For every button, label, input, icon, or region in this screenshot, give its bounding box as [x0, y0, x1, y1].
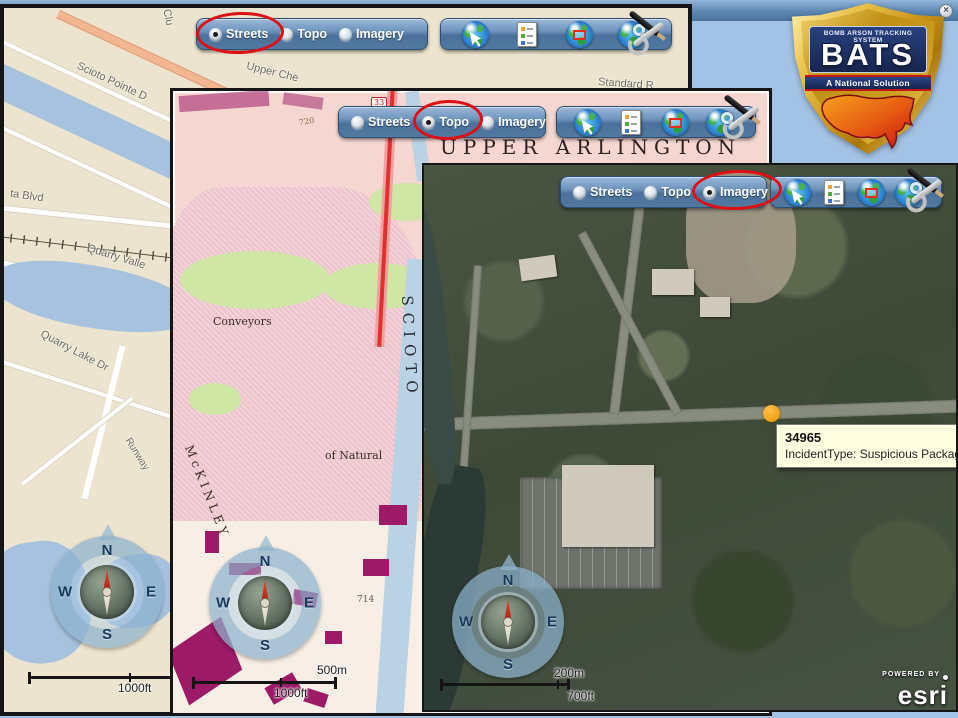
extent-globe-icon[interactable] — [566, 21, 593, 48]
logo-acronym: BATS — [810, 37, 926, 73]
radio-label: Imagery — [720, 185, 768, 199]
identify-globe-icon[interactable] — [784, 179, 811, 206]
usa-map-icon — [818, 91, 918, 151]
settings-tools-icon[interactable] — [626, 8, 676, 54]
building-shape — [363, 559, 389, 576]
basemap-toolbar: Streets Topo Imagery — [560, 176, 767, 208]
street-label: Clu — [160, 8, 175, 27]
logo-panel: Bomb Arson Tracking System BATS — [809, 26, 927, 73]
radio-circle-icon[interactable] — [573, 186, 586, 199]
radio-label: Streets — [590, 185, 632, 199]
basemap-radio-topo[interactable]: Topo — [274, 27, 333, 41]
building-shape — [519, 255, 558, 282]
compass-needle — [481, 595, 535, 649]
radio-label: Imagery — [356, 27, 404, 41]
radio-circle-icon[interactable] — [339, 28, 352, 41]
settings-tools-icon[interactable] — [721, 92, 771, 138]
incident-id: 34965 — [785, 430, 958, 445]
radio-circle-icon[interactable] — [422, 116, 435, 129]
incident-popup: 34965 IncidentType: Suspicious Package/ — [776, 424, 958, 468]
compass-south-label: S — [102, 626, 112, 643]
compass-needle — [238, 576, 292, 630]
extent-rect-icon — [669, 118, 682, 128]
compass-needle — [80, 565, 134, 619]
basemap-radio-streets[interactable]: Streets — [203, 27, 274, 41]
incident-detail: IncidentType: Suspicious Package/ — [785, 447, 958, 461]
compass-rose[interactable]: N E S W — [209, 547, 321, 659]
building-shape — [325, 631, 342, 644]
powered-by-label: POWERED BY — [882, 671, 940, 678]
building-shape — [379, 505, 407, 525]
settings-tools-icon[interactable] — [904, 165, 954, 211]
compass-east-label: E — [304, 595, 314, 612]
road-shape — [0, 204, 195, 232]
extent-globe-icon[interactable] — [858, 179, 885, 206]
street-label: Upper Che — [245, 60, 300, 85]
globe-icon — [784, 179, 811, 206]
scale-metric-label: 200m — [554, 666, 584, 680]
basemap-radio-imagery[interactable]: Imagery — [475, 115, 552, 129]
compass-north-label: N — [102, 542, 113, 559]
scale-imperial-label: 1000ft — [118, 681, 151, 695]
imagery-map-window[interactable]: Streets Topo Imagery 34965 — [422, 163, 958, 712]
street-label: Quarry Lake Dr — [38, 328, 110, 374]
place-label: Conveyors — [213, 315, 272, 328]
radio-label: Topo — [661, 185, 691, 199]
scale-bar: 500m 1000ft — [192, 673, 337, 707]
scale-bar-line — [192, 681, 337, 684]
compass-north-label: N — [260, 553, 271, 570]
radio-circle-icon[interactable] — [209, 28, 222, 41]
bats-logo: Bomb Arson Tracking System BATS A Nation… — [792, 3, 944, 154]
compass-rose[interactable]: N E S W — [452, 566, 564, 678]
compass-rose[interactable]: N E S W — [51, 536, 163, 648]
radio-label: Topo — [297, 27, 327, 41]
radio-label: Streets — [368, 115, 410, 129]
compass-west-label: W — [216, 595, 230, 612]
legend-page-icon — [517, 22, 537, 47]
scale-metric-label: 500m — [317, 663, 347, 677]
basemap-toolbar: Streets Topo Imagery — [338, 106, 546, 138]
compass-west-label: W — [459, 614, 473, 631]
building-shape — [652, 269, 694, 295]
bats-mapping-application: Clu Scioto Pointe D Upper Che Standard R… — [0, 0, 958, 718]
vegetation-shape — [180, 251, 330, 309]
vegetation-shape — [189, 383, 241, 415]
street-label: ta Blvd — [9, 188, 44, 205]
scale-bar-line — [440, 683, 570, 686]
contour-label: 720 — [298, 116, 315, 128]
basemap-radio-streets[interactable]: Streets — [567, 185, 638, 199]
basemap-toolbar: Streets Topo Imagery — [196, 18, 428, 50]
compass-south-label: S — [503, 656, 513, 673]
legend-list-icon[interactable] — [618, 109, 645, 136]
incident-marker[interactable] — [763, 405, 780, 422]
road-shape — [20, 396, 134, 487]
radio-label: Topo — [439, 115, 469, 129]
radio-circle-icon[interactable] — [703, 186, 716, 199]
radio-label: Imagery — [498, 115, 546, 129]
radio-circle-icon[interactable] — [351, 116, 364, 129]
radio-circle-icon[interactable] — [481, 116, 494, 129]
building-shape — [562, 465, 654, 547]
radio-circle-icon[interactable] — [280, 28, 293, 41]
contour-label: 714 — [357, 595, 374, 605]
logo-banner: A National Solution — [805, 75, 931, 91]
extent-rect-icon — [865, 188, 878, 198]
place-label: of Natural — [325, 449, 382, 462]
esri-logo: esri — [882, 685, 948, 705]
compass-north-label: N — [503, 572, 514, 589]
identify-globe-icon[interactable] — [574, 109, 601, 136]
basemap-radio-imagery[interactable]: Imagery — [697, 185, 774, 199]
globe-icon — [574, 109, 601, 136]
scale-imperial-label: 700ft — [567, 689, 594, 703]
esri-attribution: POWERED BY esri — [882, 667, 948, 705]
basemap-radio-imagery[interactable]: Imagery — [333, 27, 410, 41]
scale-imperial-label: 1000ft — [274, 686, 307, 700]
building-shape — [700, 297, 730, 317]
legend-page-icon — [824, 180, 844, 205]
street-label: Runway — [123, 436, 151, 472]
globe-icon — [462, 21, 489, 48]
legend-list-icon[interactable] — [821, 179, 848, 206]
building-shape — [282, 92, 323, 109]
extent-globe-icon[interactable] — [662, 109, 689, 136]
radio-label: Streets — [226, 27, 268, 41]
city-label: UPPER ARLINGTON — [440, 135, 741, 159]
compass-east-label: E — [146, 584, 156, 601]
basemap-radio-topo[interactable]: Topo — [416, 115, 475, 129]
extent-rect-icon — [573, 30, 586, 40]
legend-list-icon[interactable] — [514, 21, 541, 48]
water-shape — [422, 204, 463, 486]
radio-circle-icon[interactable] — [644, 186, 657, 199]
identify-globe-icon[interactable] — [462, 21, 489, 48]
basemap-radio-streets[interactable]: Streets — [345, 115, 416, 129]
compass-east-label: E — [547, 614, 557, 631]
compass-west-label: W — [58, 584, 72, 601]
legend-page-icon — [621, 110, 641, 135]
basemap-radio-topo[interactable]: Topo — [638, 185, 697, 199]
compass-south-label: S — [260, 637, 270, 654]
building-shape — [179, 90, 270, 112]
scale-bar: 200m 700ft — [440, 675, 570, 709]
